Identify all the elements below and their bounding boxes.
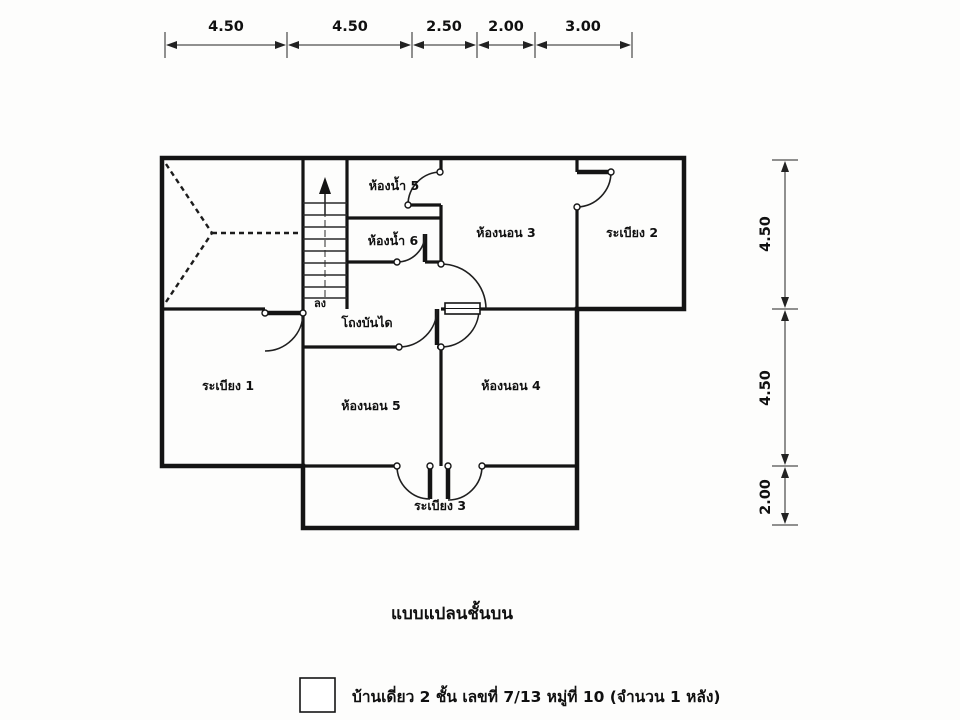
legend: บ้านเดี่ยว 2 ชั้น เลขที่ 7/13 หมู่ที่ 10… — [300, 678, 721, 712]
room-label-bedroom3: ห้องนอน 3 — [476, 225, 536, 240]
exterior-walls — [162, 158, 684, 528]
staircase — [303, 177, 347, 300]
floor-plan-drawing: 4.50 4.50 2.50 2.00 3.00 4.50 4.50 2.00 — [0, 0, 960, 720]
plan-caption: แบบแปลนชั้นบน — [391, 600, 513, 624]
dim-top-5: 3.00 — [565, 19, 601, 35]
roof-outline-dashed — [166, 164, 298, 302]
room-label-balcony2: ระเบียง 2 — [606, 225, 658, 240]
right-dimension-line: 4.50 4.50 2.00 — [758, 160, 798, 525]
dim-right-2: 4.50 — [758, 370, 774, 406]
interior-walls — [162, 158, 684, 528]
dim-right-3: 2.00 — [758, 479, 774, 515]
room-label-bathroom5: ห้องน้ำ 5 — [369, 176, 419, 193]
room-label-bathroom6: ห้องน้ำ 6 — [368, 231, 419, 248]
room-label-balcony1: ระเบียง 1 — [202, 378, 254, 393]
room-label-bedroom4: ห้องนอน 4 — [481, 378, 541, 393]
room-label-balcony3: ระเบียง 3 — [414, 498, 466, 513]
room-label-stair-hall: โถงบันได — [340, 315, 392, 330]
room-label-bedroom5: ห้องนอน 5 — [341, 398, 401, 413]
top-dimension-line: 4.50 4.50 2.50 2.00 3.00 — [165, 19, 632, 58]
dim-top-1: 4.50 — [208, 19, 244, 35]
window-symbol — [445, 303, 480, 314]
stair-direction-arrow-icon — [319, 177, 331, 215]
dim-top-4: 2.00 — [488, 19, 524, 35]
legend-label: บ้านเดี่ยว 2 ชั้น เลขที่ 7/13 หมู่ที่ 10… — [352, 685, 721, 708]
dim-right-1: 4.50 — [758, 216, 774, 252]
dim-top-2: 4.50 — [332, 19, 368, 35]
floor-plan-page: 4.50 4.50 2.50 2.00 3.00 4.50 4.50 2.00 — [0, 0, 960, 720]
legend-swatch — [300, 678, 335, 712]
dim-top-3: 2.50 — [426, 19, 462, 35]
stair-down-label: ลง — [314, 297, 326, 310]
